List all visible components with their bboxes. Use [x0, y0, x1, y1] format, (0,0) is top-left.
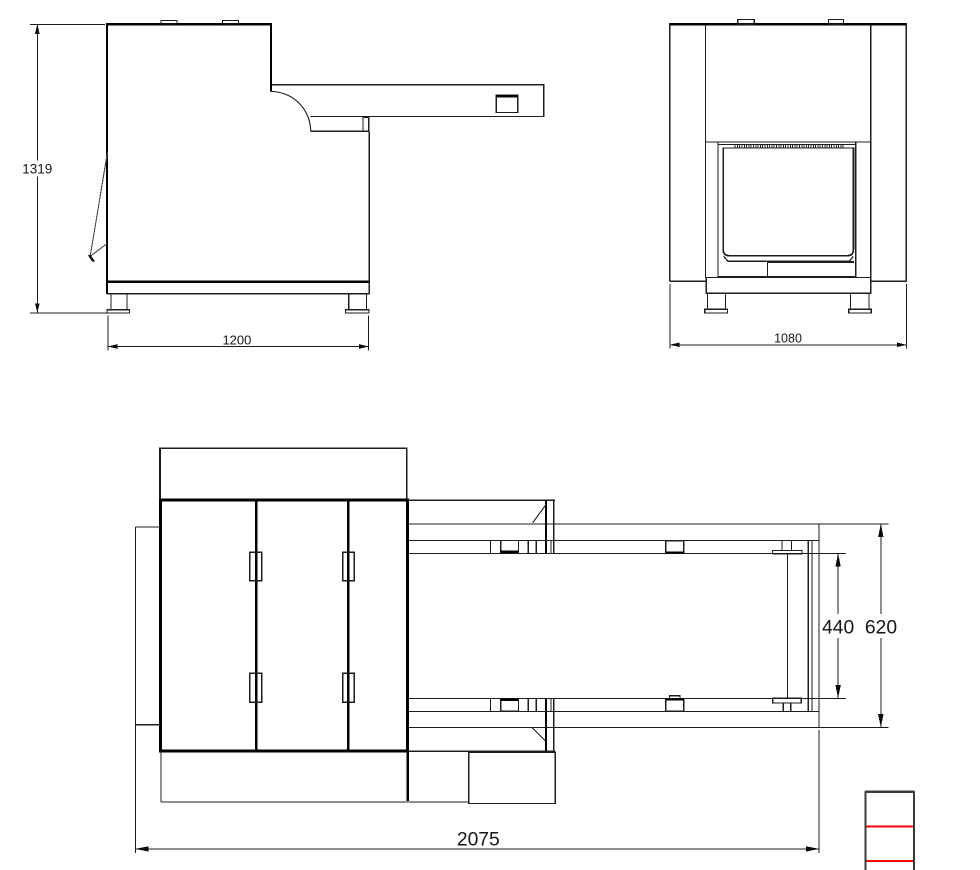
svg-text:440: 440 — [822, 618, 854, 639]
svg-text:1080: 1080 — [774, 331, 802, 345]
svg-text:1200: 1200 — [222, 332, 251, 347]
svg-text:1319: 1319 — [22, 161, 52, 176]
svg-text:2075: 2075 — [457, 830, 500, 851]
svg-text:620: 620 — [865, 618, 897, 639]
